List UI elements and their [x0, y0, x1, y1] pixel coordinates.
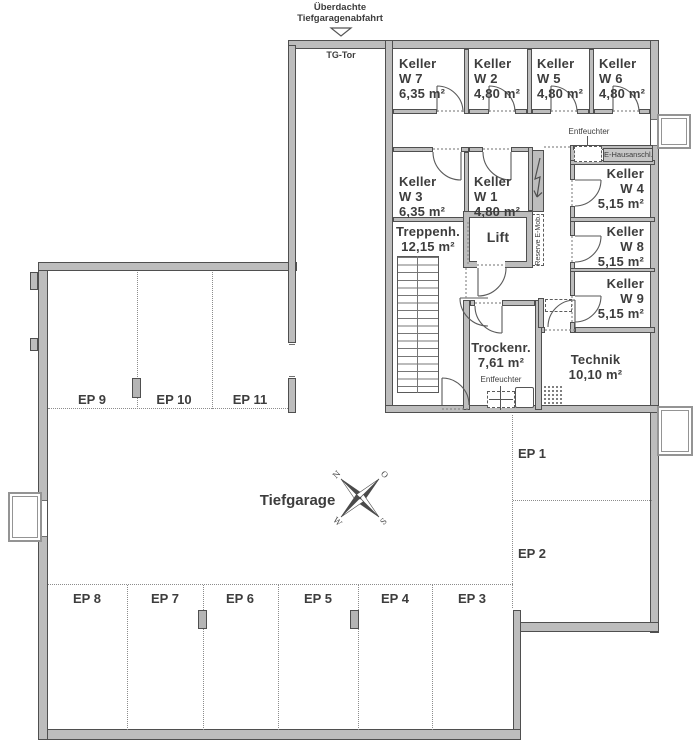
parking-line — [127, 585, 128, 730]
parking-line — [212, 272, 213, 409]
room-area: 4,80 m² — [537, 86, 591, 101]
room-label-trockenraum: Trockenr. 7,61 m² — [464, 340, 538, 370]
room-unit: W 1 — [474, 189, 528, 204]
parking-line — [512, 415, 513, 608]
room-area: 4,80 m² — [474, 86, 528, 101]
compass-icon: N O S W — [330, 466, 392, 534]
room-label-keller-w7: Keller W 7 6,35 m² — [399, 56, 463, 101]
compass-w: W — [331, 516, 344, 529]
room-unit: W 4 — [572, 181, 644, 196]
room-unit: W 5 — [537, 71, 591, 86]
room-name: Treppenh. — [392, 224, 464, 239]
room-name: Trockenr. — [464, 340, 538, 355]
room-name: Keller — [572, 166, 644, 181]
parking-line — [432, 585, 433, 730]
parking-label-ep3: EP 3 — [442, 591, 502, 606]
room-label-keller-w5: Keller W 5 4,80 m² — [537, 56, 591, 101]
parking-line — [358, 585, 359, 730]
parking-label-ep1: EP 1 — [518, 446, 568, 461]
room-area: 4,80 m² — [599, 86, 653, 101]
room-name: Keller — [572, 276, 644, 291]
floor-plan: Überdachte Tiefgaragenabfahrt TG-Tor — [0, 0, 700, 751]
room-label-keller-w3: Keller W 3 6,35 m² — [399, 174, 463, 219]
room-label-keller-w6: Keller W 6 4,80 m² — [599, 56, 653, 101]
room-area: 4,80 m² — [474, 204, 528, 219]
room-area: 6,35 m² — [399, 86, 463, 101]
room-label-keller-w4: Keller W 4 5,15 m² — [572, 166, 644, 211]
parking-line — [203, 585, 204, 730]
room-name: Keller — [399, 174, 463, 189]
room-name: Keller — [399, 56, 463, 71]
room-unit: W 7 — [399, 71, 463, 86]
room-label-lift: Lift — [469, 230, 527, 245]
room-label-technik: Technik 10,10 m² — [543, 352, 648, 382]
parking-line — [278, 585, 279, 730]
room-name: Lift — [469, 230, 527, 245]
room-area: 5,15 m² — [572, 306, 644, 321]
parking-label-ep6: EP 6 — [210, 591, 270, 606]
parking-line — [48, 408, 288, 409]
room-label-treppenhaus: Treppenh. 12,15 m² — [392, 224, 464, 254]
pillar — [132, 378, 141, 398]
room-unit: W 6 — [599, 71, 653, 86]
room-name: Keller — [474, 174, 528, 189]
parking-label-ep11: EP 11 — [220, 392, 280, 407]
room-unit: W 9 — [572, 291, 644, 306]
parking-label-ep4: EP 4 — [365, 591, 425, 606]
room-unit: W 3 — [399, 189, 463, 204]
parking-line — [48, 584, 513, 585]
room-label-keller-w8: Keller W 8 5,15 m² — [572, 224, 644, 269]
room-label-keller-w2: Keller W 2 4,80 m² — [474, 56, 528, 101]
room-area: 5,15 m² — [572, 196, 644, 211]
room-name: Keller — [599, 56, 653, 71]
room-area: 10,10 m² — [543, 367, 648, 382]
room-area: 7,61 m² — [464, 355, 538, 370]
room-unit: W 2 — [474, 71, 528, 86]
pillar — [350, 610, 359, 629]
compass-n: N — [331, 469, 342, 480]
room-area: 5,15 m² — [572, 254, 644, 269]
parking-label-ep8: EP 8 — [57, 591, 117, 606]
parking-label-ep7: EP 7 — [135, 591, 195, 606]
pillar — [198, 610, 207, 629]
compass-o: O — [379, 469, 390, 480]
room-area: 6,35 m² — [399, 204, 463, 219]
room-name: Technik — [543, 352, 648, 367]
room-name: Keller — [572, 224, 644, 239]
room-area: 12,15 m² — [392, 239, 464, 254]
room-unit: W 8 — [572, 239, 644, 254]
compass-s: S — [379, 517, 389, 527]
room-name: Keller — [474, 56, 528, 71]
parking-label-ep5: EP 5 — [288, 591, 348, 606]
room-label-keller-w9: Keller W 9 5,15 m² — [572, 276, 644, 321]
room-label-keller-w1: Keller W 1 4,80 m² — [474, 174, 528, 219]
parking-label-ep10: EP 10 — [144, 392, 204, 407]
parking-label-ep9: EP 9 — [62, 392, 122, 407]
parking-label-ep2: EP 2 — [518, 546, 568, 561]
room-name: Keller — [537, 56, 591, 71]
parking-line — [513, 500, 652, 501]
